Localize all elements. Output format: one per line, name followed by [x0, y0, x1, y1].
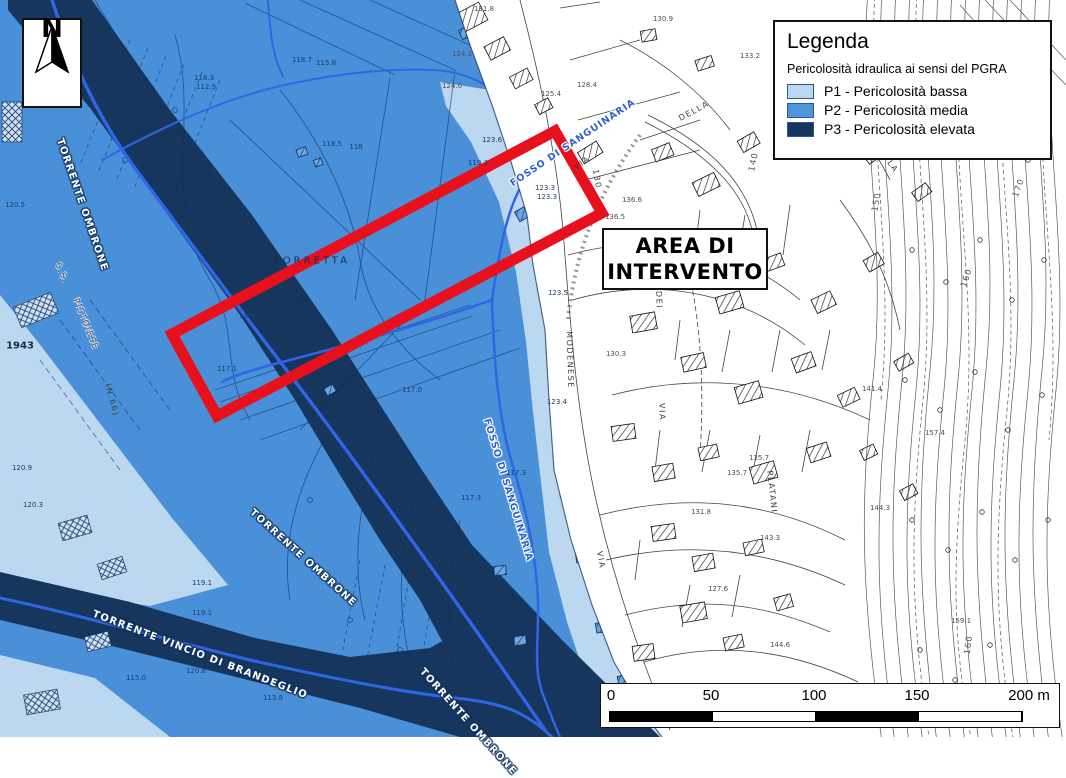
legend-panel: Legenda Pericolosità idraulica ai sensi …	[773, 20, 1052, 160]
legend-item-p2: P2 - Pericolosità media	[787, 102, 1038, 118]
area-box-line1: AREA DI	[635, 233, 734, 259]
scalebar-tick: 200 m	[1008, 687, 1050, 704]
scalebar-tick: 100	[801, 687, 826, 704]
area-box-line2: INTERVENTO	[607, 259, 763, 285]
legend-item-p3: P3 - Pericolosità elevata	[787, 121, 1038, 137]
scalebar-segment	[712, 712, 816, 721]
scalebar-segment	[918, 712, 1022, 721]
map-canvas: TORRENTE OMBRONETORRENTE OMBRONETORRENTE…	[0, 0, 1066, 737]
p2-swatch	[787, 103, 814, 118]
legend-item-label: P1 - Pericolosità bassa	[824, 83, 967, 99]
legend-item-p1: P1 - Pericolosità bassa	[787, 83, 1038, 99]
north-arrow-box: N	[22, 18, 82, 108]
scalebar-segment	[816, 712, 918, 721]
legend-item-label: P3 - Pericolosità elevata	[824, 121, 975, 137]
legend-title: Legenda	[787, 30, 1038, 54]
legend-subtitle: Pericolosità idraulica ai sensi del PGRA	[787, 62, 1038, 76]
p3-swatch	[787, 122, 814, 137]
scalebar-ticks: 0 50 100 150 200 m	[601, 687, 1059, 705]
north-arrow-icon	[24, 20, 80, 78]
scalebar-panel: 0 50 100 150 200 m	[600, 683, 1060, 728]
scalebar-tick: 150	[904, 687, 929, 704]
scalebar-tick: 50	[703, 687, 720, 704]
legend-item-label: P2 - Pericolosità media	[824, 102, 968, 118]
p1-swatch	[787, 84, 814, 99]
scalebar-bar	[609, 711, 1023, 722]
scalebar-tick: 0	[607, 687, 615, 704]
scalebar-segment	[610, 712, 712, 721]
area-di-intervento-box: AREA DI INTERVENTO	[602, 228, 768, 290]
